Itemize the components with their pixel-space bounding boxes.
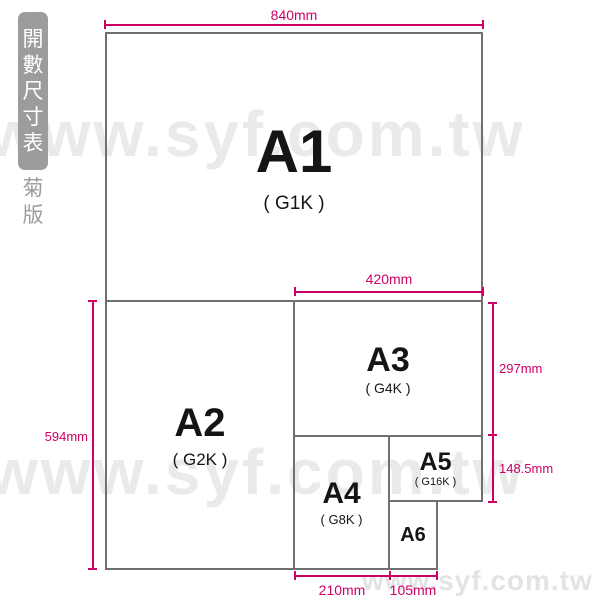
paper-a3-label: A3 [366, 343, 409, 377]
title-char: 數 [23, 55, 44, 76]
paper-a1-box: A1 ( G1K ) [105, 32, 483, 302]
dim-148mm-label: 148.5mm [499, 462, 553, 475]
paper-a2-box: A2 ( G2K ) [105, 300, 295, 570]
dim-148mm-tick-bottom [488, 501, 497, 503]
dim-297mm-label: 297mm [499, 362, 542, 375]
edition-char: 版 [23, 205, 44, 226]
paper-a6-box: A6 [388, 500, 438, 570]
paper-a5-sublabel: ( G16K ) [415, 477, 457, 488]
paper-size-diagram: www.syf.com.tw www.syf.com.tw www.syf.co… [0, 0, 600, 600]
paper-a3-sublabel: ( G4K ) [365, 381, 410, 395]
paper-a2-label: A2 [174, 403, 225, 443]
chart-title-vertical: 開 數 尺 寸 表 [18, 12, 48, 170]
dim-297mm-line [492, 303, 494, 435]
dim-840mm-tick-right [482, 20, 484, 29]
dim-420mm-tick-left [294, 287, 296, 296]
dim-594mm-label: 594mm [45, 430, 88, 443]
paper-a5-label: A5 [420, 450, 452, 475]
dim-840mm-tick-left [104, 20, 106, 29]
paper-a4-label: A4 [322, 479, 360, 509]
dim-105mm-label: 105mm [390, 583, 437, 597]
dim-148mm-line [492, 435, 494, 502]
title-char: 尺 [23, 81, 44, 102]
dim-bottom-line [295, 575, 437, 577]
paper-a2-sublabel: ( G2K ) [173, 451, 228, 468]
paper-a6-label: A6 [400, 525, 426, 545]
dim-594mm-line [92, 301, 94, 569]
dim-420mm-tick-right [482, 287, 484, 296]
title-char: 表 [23, 133, 44, 154]
dim-bottom-tick-right [436, 571, 438, 580]
edition-label-vertical: 菊 版 [18, 178, 48, 226]
dim-420mm-label: 420mm [366, 272, 413, 286]
title-char: 開 [23, 29, 44, 50]
dim-840mm-line [105, 24, 483, 26]
dim-bottom-tick-mid [389, 571, 391, 580]
dim-594mm-tick-bottom [88, 568, 97, 570]
dim-bottom-tick-left [294, 571, 296, 580]
dim-420mm-line [295, 291, 483, 293]
paper-a4-box: A4 ( G8K ) [293, 435, 390, 570]
paper-a1-sublabel: ( G1K ) [263, 194, 324, 213]
dim-297mm-tick-top [488, 302, 497, 304]
paper-a4-sublabel: ( G8K ) [321, 513, 363, 526]
edition-char: 菊 [23, 178, 44, 199]
dim-840mm-label: 840mm [271, 8, 318, 22]
title-char: 寸 [23, 107, 44, 128]
dim-210mm-label: 210mm [319, 583, 366, 597]
dim-594mm-tick-top [88, 300, 97, 302]
paper-a3-box: A3 ( G4K ) [293, 300, 483, 437]
paper-a1-label: A1 [256, 122, 333, 182]
paper-a5-box: A5 ( G16K ) [388, 435, 483, 502]
